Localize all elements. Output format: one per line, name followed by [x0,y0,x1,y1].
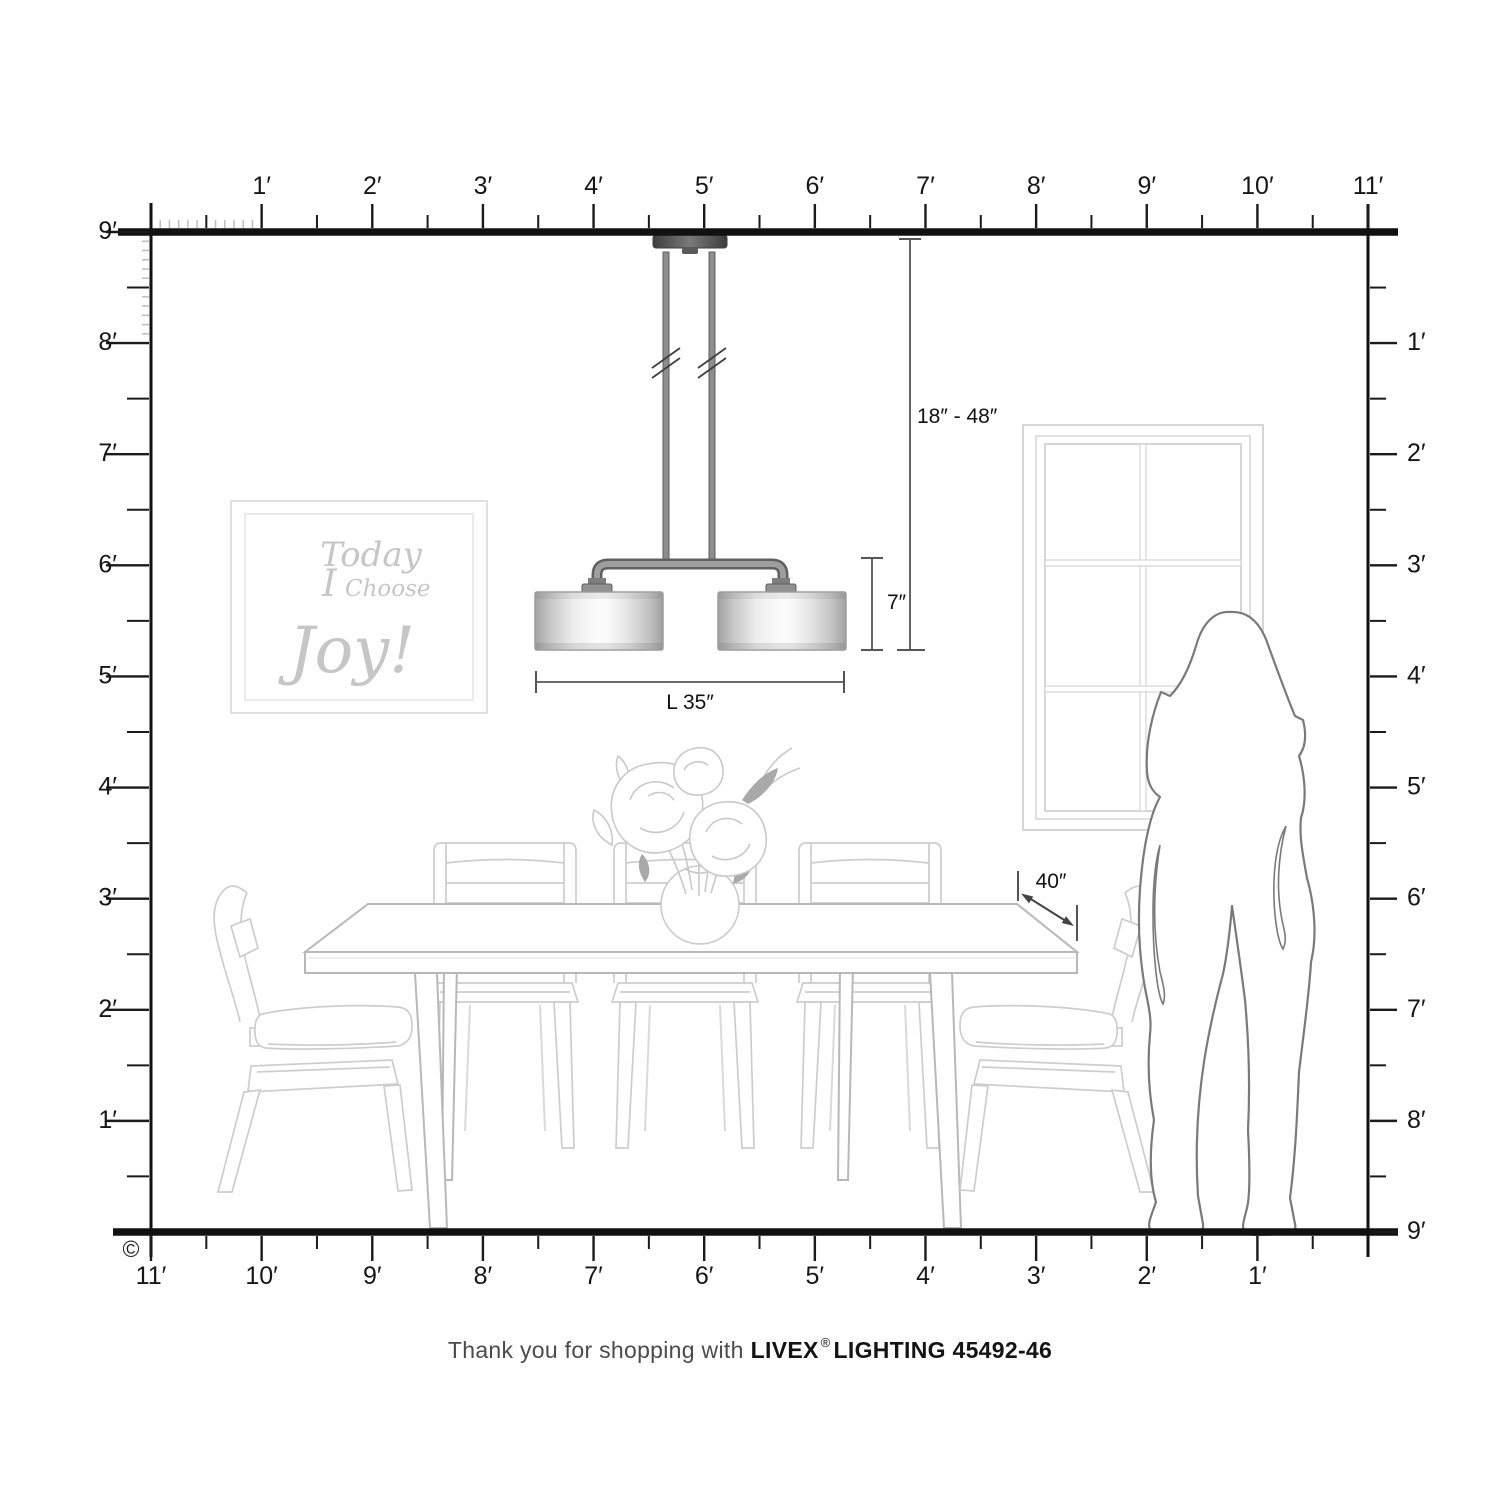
downrod [709,252,715,564]
fixture-length-label: L 35″ [666,691,714,714]
back-chair [797,843,943,1148]
ruler-label: 7′ [98,439,117,467]
ruler-label: 7′ [1407,995,1426,1023]
ruler-label: 1′ [252,172,271,200]
ruler-label: 3′ [474,172,493,200]
ruler-label: 3′ [1027,1262,1046,1290]
ruler-label: 9′ [98,217,117,245]
clearance-label: 40″ [1036,870,1067,893]
caption-product: LIGHTING 45492-46 [834,1337,1053,1363]
ruler-label: 11′ [136,1262,167,1290]
drum-shade-right [718,592,846,650]
ruler-label: 1′ [1407,328,1426,356]
ruler-label: 2′ [1407,439,1426,467]
ruler-label: 7′ [916,172,935,200]
canopy [653,235,727,248]
ruler-label: 5′ [695,172,714,200]
downrod [663,252,669,564]
ruler-label: 6′ [1407,884,1426,912]
ruler-label: 8′ [98,328,117,356]
copyright-symbol: © [123,1236,140,1262]
ruler-label: 3′ [98,884,117,912]
ruler-label: 11′ [1353,172,1384,200]
ruler-label: 2′ [1137,1262,1156,1290]
ruler-label: 4′ [584,172,603,200]
window-mullion [1140,444,1146,811]
person-silhouette [1139,612,1315,1235]
wall-art-word-i: I [321,562,338,605]
ruler-label: 10′ [245,1262,278,1290]
fixture-height-dimension: 7″ [861,558,907,650]
ruler-label: 2′ [98,995,117,1023]
wall-art-word-choose: Choose [345,576,431,602]
ruler-label: 9′ [1407,1217,1426,1245]
ruler-label: 6′ [695,1262,714,1290]
caption-prefix: Thank you for shopping with [448,1337,744,1363]
ruler-label: 9′ [1137,172,1156,200]
ruler-label: 4′ [916,1262,935,1290]
ruler-label: 6′ [98,550,117,578]
ruler-label: 8′ [1027,172,1046,200]
ruler-label: 1′ [98,1106,117,1134]
hang-height-label: 18″ - 48″ [917,405,998,428]
ruler-label: 5′ [1407,773,1426,801]
fixture-arm [597,564,783,590]
wall-art-line3: Joy! [278,614,415,688]
canopy-collar [682,248,698,254]
ruler-label: 7′ [584,1262,603,1290]
ruler-label: 2′ [363,172,382,200]
fixture-length-dimension: L 35″ [536,671,844,714]
ruler-label: 8′ [474,1262,493,1290]
ruler-label: 8′ [1407,1106,1426,1134]
ruler-label: 10′ [1241,172,1274,200]
ruler-label: 1′ [1248,1262,1267,1290]
diagram-canvas: Today I Choose Joy! [0,0,1500,1500]
caption-brand: LIVEX [751,1337,819,1363]
ruler-label: 9′ [363,1262,382,1290]
light-fixture [535,235,846,650]
fixture-height-label: 7″ [887,591,907,614]
ruler-label: 3′ [1407,550,1426,578]
ruler-label: 4′ [98,773,117,801]
window-mullion [1045,560,1241,566]
caption: Thank you for shopping withLIVEX®LIGHTIN… [0,1337,1500,1364]
ruler-label: 6′ [806,172,825,200]
registered-mark: ® [821,1335,831,1350]
ruler-label: 5′ [98,661,117,689]
dining-set [214,748,1158,1228]
hang-height-dimension: 18″ - 48″ [897,239,998,650]
ruler-label: 5′ [806,1262,825,1290]
ruler-label: 4′ [1407,661,1426,689]
drum-shade-left [535,592,663,650]
wall-art-frame: Today I Choose Joy! [231,501,487,713]
